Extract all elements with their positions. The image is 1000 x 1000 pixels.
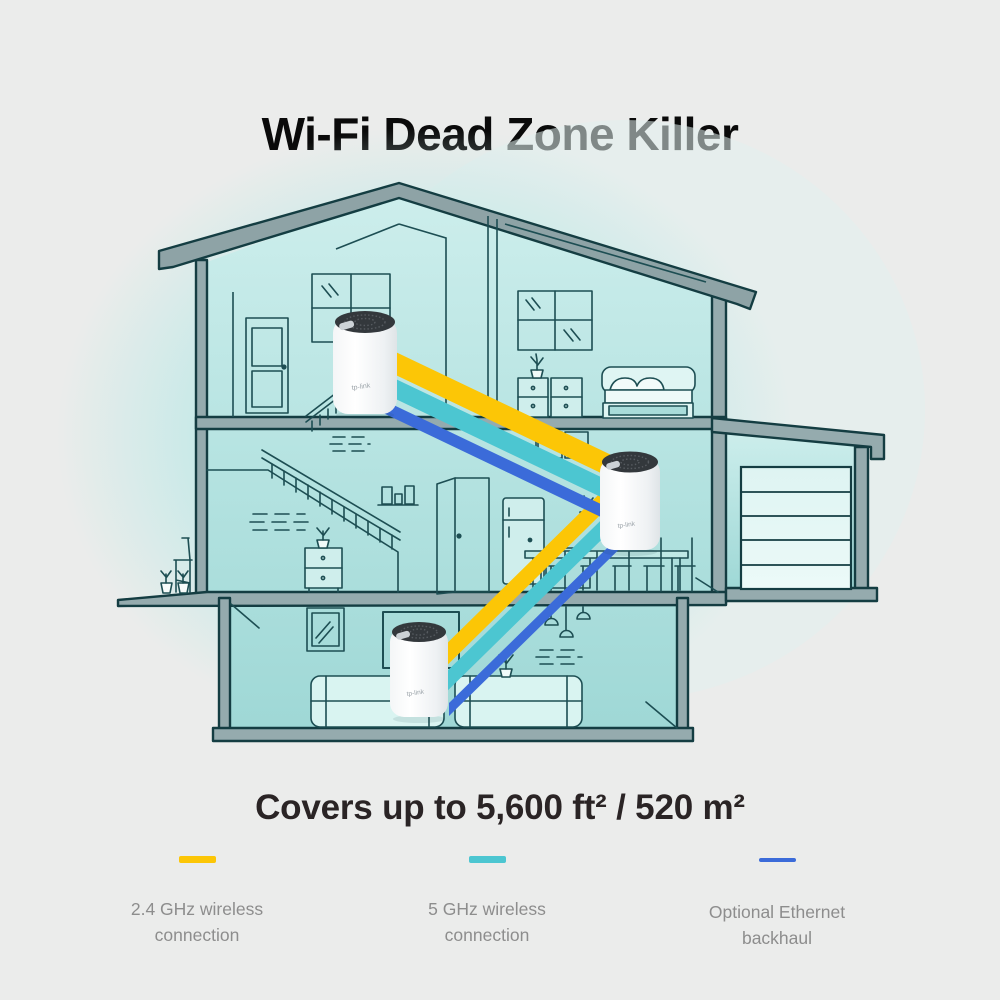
coverage-caption: Covers up to 5,600 ft² / 520 m² xyxy=(0,788,1000,828)
right-wall xyxy=(712,290,726,603)
legend: 2.4 GHz wireless connection 5 GHz wirele… xyxy=(0,856,1000,966)
legend-label-ethernet: Optional Ethernet backhaul xyxy=(687,899,867,952)
legend-swatch-5ghz xyxy=(469,856,506,863)
middle-floor-slab-balcony xyxy=(118,592,726,606)
house-illustration: tp-link tp-link tp-link xyxy=(0,0,1000,1000)
bed xyxy=(602,367,695,418)
deco-unit-bottom: tp-link xyxy=(390,622,448,723)
ground-left-wall xyxy=(219,598,230,730)
ground-right-wall xyxy=(677,598,688,730)
garage-right-wall xyxy=(855,447,868,599)
deco-unit-top: tp-link xyxy=(333,311,397,419)
deco-unit-middle: tp-link xyxy=(600,452,660,557)
legend-item-5ghz: 5 GHz wireless connection xyxy=(372,856,602,949)
ground-slab xyxy=(213,728,693,741)
legend-label-24ghz: 2.4 GHz wireless connection xyxy=(107,896,287,949)
legend-item-ethernet: Optional Ethernet backhaul xyxy=(662,856,892,952)
garage-door xyxy=(741,467,851,589)
legend-swatch-24ghz xyxy=(179,856,216,863)
legend-item-24ghz: 2.4 GHz wireless connection xyxy=(82,856,312,949)
legend-label-5ghz: 5 GHz wireless connection xyxy=(397,896,577,949)
legend-swatch-ethernet xyxy=(759,858,796,862)
